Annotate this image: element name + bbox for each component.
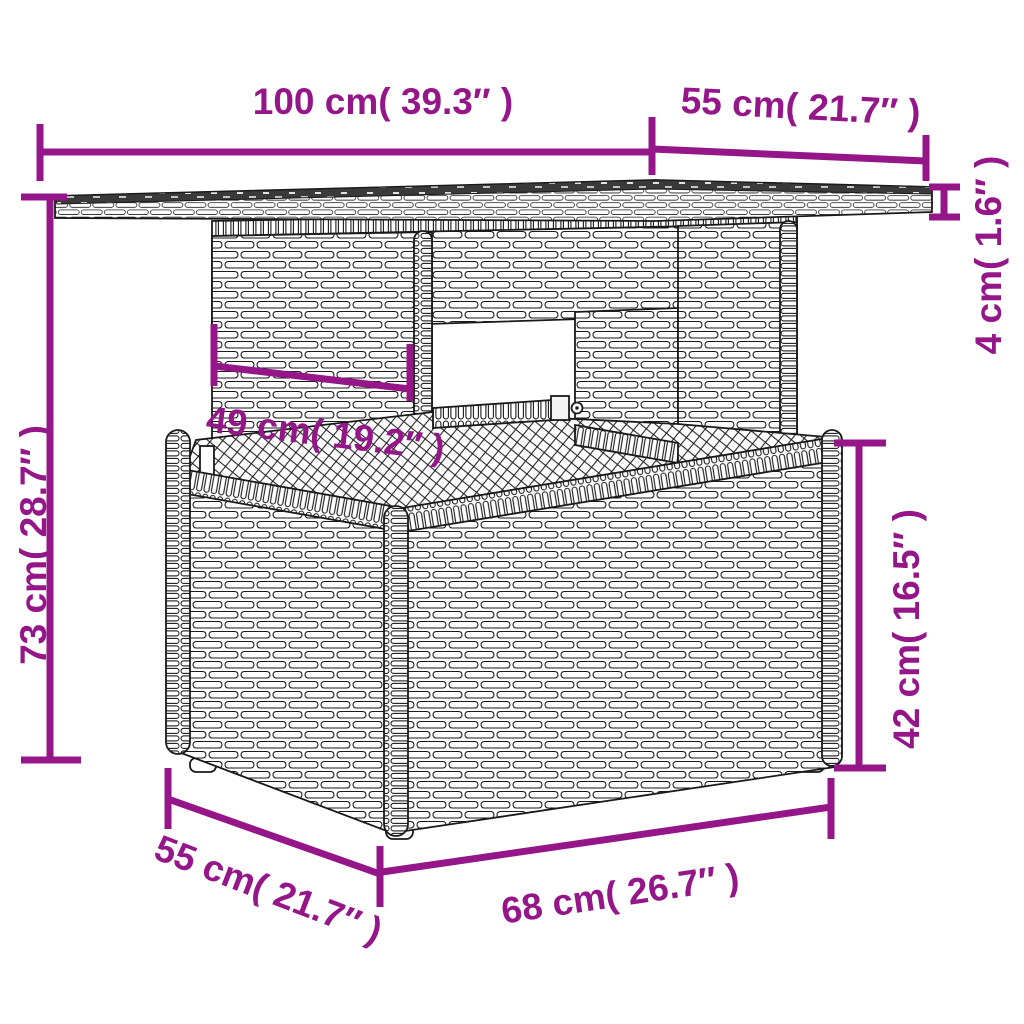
base-right-post (822, 430, 842, 766)
dimension-diagram: 100 cm( 39.3″ ) 55 cm( 21.7″ ) 4 cm( 1.6… (0, 0, 1024, 1024)
table-illustration (55, 180, 932, 839)
dim-tabletop-depth-label: 55 cm( 21.7″ ) (680, 80, 922, 133)
dim-base-width-label: 68 cm( 26.7″ ) (499, 856, 742, 932)
dim-tabletop-thickness-line (929, 187, 960, 217)
dim-tabletop-thickness-label: 4 cm( 1.6″ ) (968, 156, 1009, 355)
rim-bracket (551, 396, 569, 420)
dim-total-height-label: 73 cm( 28.7″ ) (13, 425, 54, 665)
dim-tabletop-width-line (40, 117, 652, 181)
base-front-post (384, 506, 408, 836)
dim-base-height-label: 42 cm( 16.5″ ) (886, 509, 927, 749)
dim-base-depth-label: 55 cm( 21.7″ ) (149, 827, 388, 951)
right-pedestal-corner-tube (780, 221, 797, 443)
rim-bolt-center (575, 406, 578, 409)
dim-tabletop-depth-line (652, 135, 926, 181)
dim-tabletop-width-label: 100 cm( 39.3″ ) (253, 81, 513, 122)
base-left-face (168, 478, 400, 833)
base-left-post (166, 430, 190, 754)
